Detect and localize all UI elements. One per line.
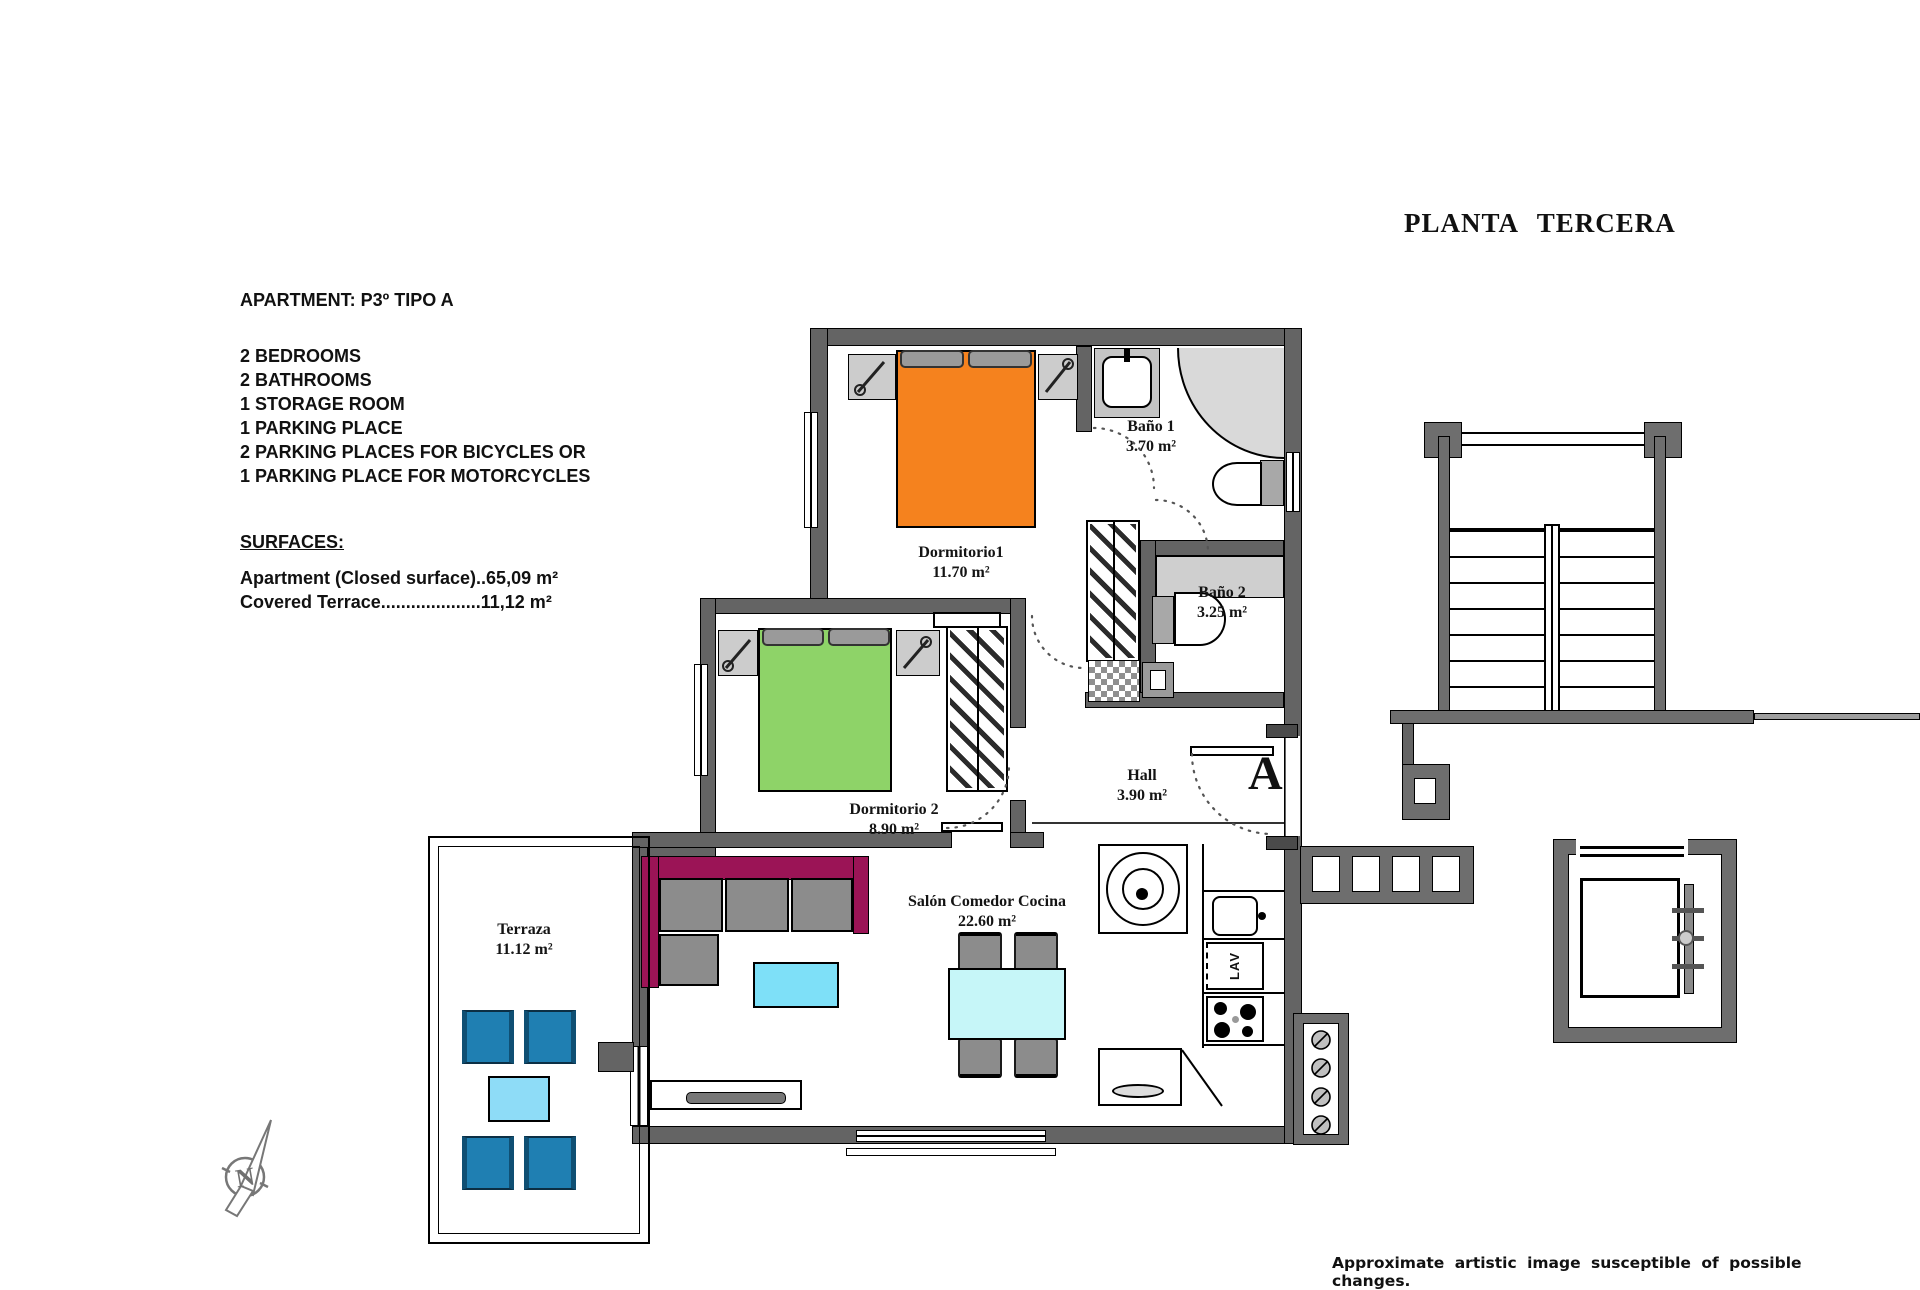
nightstand [718, 630, 758, 676]
sofa-cushion [725, 878, 789, 932]
surface-item: Apartment (Closed surface)..65,09 m² [240, 566, 800, 590]
feature-item: 1 PARKING PLACE FOR MOTORCYCLES [240, 464, 800, 488]
pillow [762, 628, 824, 646]
exterior-wall-top [810, 328, 1302, 346]
counter-diagonal [1182, 1050, 1222, 1106]
tv [686, 1092, 786, 1104]
stove-burner [1242, 1026, 1253, 1037]
room-name: Dormitorio 2 [794, 800, 994, 820]
bed-dormitorio1 [896, 350, 1036, 528]
stair-wall [1654, 436, 1666, 724]
window-bath1 [1286, 452, 1300, 512]
feature-item: 2 BEDROOMS [240, 344, 800, 368]
pillow [828, 628, 890, 646]
wall-bath1-bath2 [1140, 540, 1284, 556]
elevator-door-line [1580, 854, 1684, 857]
sofa-cushion [791, 878, 853, 932]
dining-table [948, 968, 1066, 1040]
sofa-cushion [659, 934, 719, 986]
room-label-dormitorio1: Dormitorio1 11.70 m² [861, 543, 1061, 583]
room-name: Baño 1 [1091, 417, 1211, 437]
nightstand [1038, 354, 1078, 400]
stair-center-rail [1544, 524, 1560, 714]
room-label-bano1: Baño 1 3.70 m² [1091, 417, 1211, 457]
elevator-door-line [1580, 846, 1684, 849]
room-area: 11.12 m² [444, 940, 604, 960]
pillow [900, 350, 964, 368]
window-living [856, 1130, 1046, 1142]
stair-steps [1450, 528, 1544, 712]
corridor-window [1312, 856, 1340, 892]
kitchen-sink [1212, 896, 1258, 936]
room-name: Salón Comedor Cocina [887, 892, 1087, 912]
coffee-table [753, 962, 839, 1008]
room-area: 3.70 m² [1091, 437, 1211, 457]
stair-wall [1438, 436, 1450, 724]
stair-bottom-wall [1390, 710, 1754, 724]
dining-chair [1014, 1038, 1058, 1078]
terrace-table [488, 1076, 550, 1122]
wardrobe-divider [1113, 522, 1115, 660]
dining-chair [958, 1038, 1002, 1078]
shaft-connector [1402, 722, 1414, 766]
dining-chair [958, 932, 1002, 972]
room-name: Baño 2 [1162, 583, 1282, 603]
bed-dormitorio2 [758, 628, 892, 792]
terrace-chair [524, 1136, 576, 1190]
hall-wardrobe [1086, 520, 1140, 662]
stove-burner [1240, 1004, 1256, 1020]
room-label-dormitorio2: Dormitorio 2 8.90 m² [794, 800, 994, 840]
stair-steps [1560, 528, 1654, 712]
north-compass-icon: N [222, 1120, 271, 1216]
pillow [968, 350, 1032, 368]
stove-burner [1214, 1002, 1227, 1015]
room-name: Dormitorio1 [861, 543, 1061, 563]
tile-floor [1088, 660, 1140, 702]
feature-list: 2 BEDROOMS 2 BATHROOMS 1 STORAGE ROOM 1 … [240, 344, 800, 488]
toilet-tank [1260, 460, 1284, 506]
sofa-back [641, 856, 869, 880]
corridor-window [1352, 856, 1380, 892]
stove-burner [1214, 1022, 1230, 1038]
room-label-terraza: Terraza 11.12 m² [444, 920, 604, 960]
door-jamb [1266, 836, 1298, 850]
utility-box-inner [1150, 670, 1166, 690]
nightstand [848, 354, 896, 400]
elevator-car [1580, 878, 1680, 998]
room-area: 22.60 m² [887, 912, 1087, 932]
sofa-cushion [659, 878, 723, 932]
feature-item: 1 PARKING PLACE [240, 416, 800, 440]
apartment-info-block: APARTMENT: P3º TIPO A 2 BEDROOMS 2 BATHR… [240, 290, 800, 614]
elevator-mech-bar [1672, 964, 1704, 969]
wall-dorm1-bath1 [1076, 346, 1092, 432]
corridor-window [1432, 856, 1460, 892]
room-label-hall: Hall 3.90 m² [1082, 766, 1202, 806]
sink-basin [1102, 356, 1152, 408]
disclaimer-text: Approximate artistic image susceptible o… [1332, 1254, 1812, 1290]
dining-chair [1014, 932, 1058, 972]
room-name: Hall [1082, 766, 1202, 786]
page-title: PLANTA TERCERA [1404, 208, 1676, 239]
window-dorm1 [804, 412, 818, 528]
island-dish [1112, 1084, 1164, 1098]
apartment-heading: APARTMENT: P3º TIPO A [240, 290, 800, 311]
entrance-door-opening [1286, 736, 1300, 836]
sofa-arm [853, 856, 869, 934]
room-label-salon: Salón Comedor Cocina 22.60 m² [887, 892, 1087, 932]
sink-faucet-dot [1258, 912, 1266, 920]
room-area: 3.25 m² [1162, 603, 1282, 623]
room-name: Terraza [444, 920, 604, 940]
stair-landing-edge [1462, 432, 1644, 446]
terrace-chair [462, 1010, 514, 1064]
wardrobe-divider [977, 628, 979, 790]
counter-line [1202, 890, 1284, 892]
washing-machine-dot [1136, 888, 1148, 900]
room-area: 3.90 m² [1082, 786, 1202, 806]
corridor-window [1392, 856, 1420, 892]
feature-item: 2 PARKING PLACES FOR BICYCLES OR [240, 440, 800, 464]
counter-line [1202, 1044, 1284, 1046]
door-swing-arc [1032, 616, 1084, 668]
wall-living-top-b [1010, 832, 1044, 848]
apartment-letter: A [1248, 746, 1283, 801]
surfaces-heading: SURFACES: [240, 532, 800, 553]
dishwasher-label: LAV [1217, 937, 1253, 995]
shaft-pillar-opening [1414, 778, 1436, 804]
toilet-bowl [1212, 462, 1262, 506]
room-area: 11.70 m² [861, 563, 1061, 583]
storage-shaft [1294, 1014, 1348, 1144]
wall-dorm2-right-upper [1010, 598, 1026, 728]
window-sill [846, 1148, 1056, 1156]
hall-step-line [1032, 822, 1284, 824]
compass-letter: N [233, 1162, 257, 1194]
kitchen-counter-edge [1202, 844, 1204, 1048]
room-area: 8.90 m² [794, 820, 994, 840]
door-jamb [1266, 724, 1298, 738]
stair-bottom-wall-thin [1754, 713, 1920, 720]
room-label-bano2: Baño 2 3.25 m² [1162, 583, 1282, 623]
feature-item: 1 STORAGE ROOM [240, 392, 800, 416]
feature-item: 2 BATHROOMS [240, 368, 800, 392]
elevator-mech-wheel [1678, 930, 1694, 946]
terrace-chair [462, 1136, 514, 1190]
stove-dot [1232, 1016, 1239, 1023]
sink-faucet [1124, 348, 1130, 362]
window-dorm2 [694, 664, 708, 776]
elevator-mech-bar [1672, 908, 1704, 913]
dorm2-wardrobe [946, 626, 1008, 792]
terrace-chair [524, 1010, 576, 1064]
nightstand [896, 630, 940, 676]
